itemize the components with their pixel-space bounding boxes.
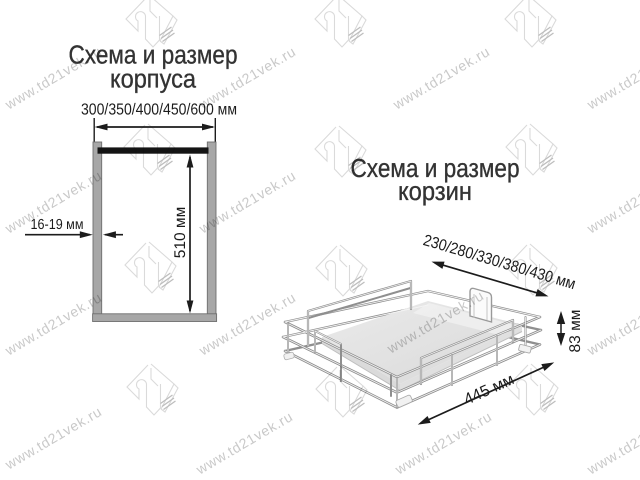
svg-text:корпуса: корпуса — [110, 64, 196, 94]
svg-text:корзин: корзин — [398, 176, 472, 206]
svg-text:83 мм: 83 мм — [567, 310, 584, 353]
svg-text:510 мм: 510 мм — [172, 207, 189, 258]
